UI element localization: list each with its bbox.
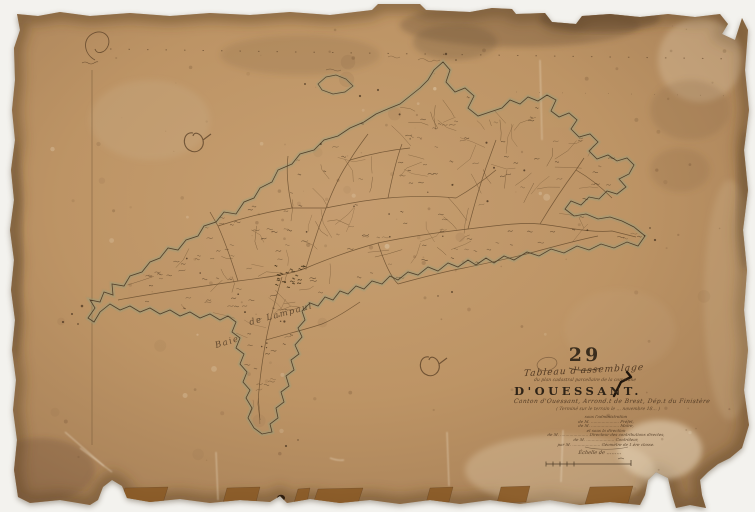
administration-lines: sous l'administration de M. ………………… Préf… (547, 415, 664, 447)
canton-line: Canton d'Ouessant, Arrond.t de Brest, Dé… (513, 398, 710, 405)
map-title: D'OUESSANT. (514, 384, 642, 398)
document-subtitle: du plan cadastral parcellaire de la comm… (534, 378, 637, 383)
ink-blot (277, 495, 285, 501)
scanned-map-sheet: Baie de Lampaul (0, 0, 755, 512)
sheet-number: 29 (569, 344, 601, 366)
scale-label: Échelle de ……… (578, 450, 622, 456)
completion-line: ( Terminé sur le terrain le … novembre 1… (556, 407, 661, 412)
admin-line: par M. ………………… Géomètre de 1.ère classe. (547, 443, 665, 448)
